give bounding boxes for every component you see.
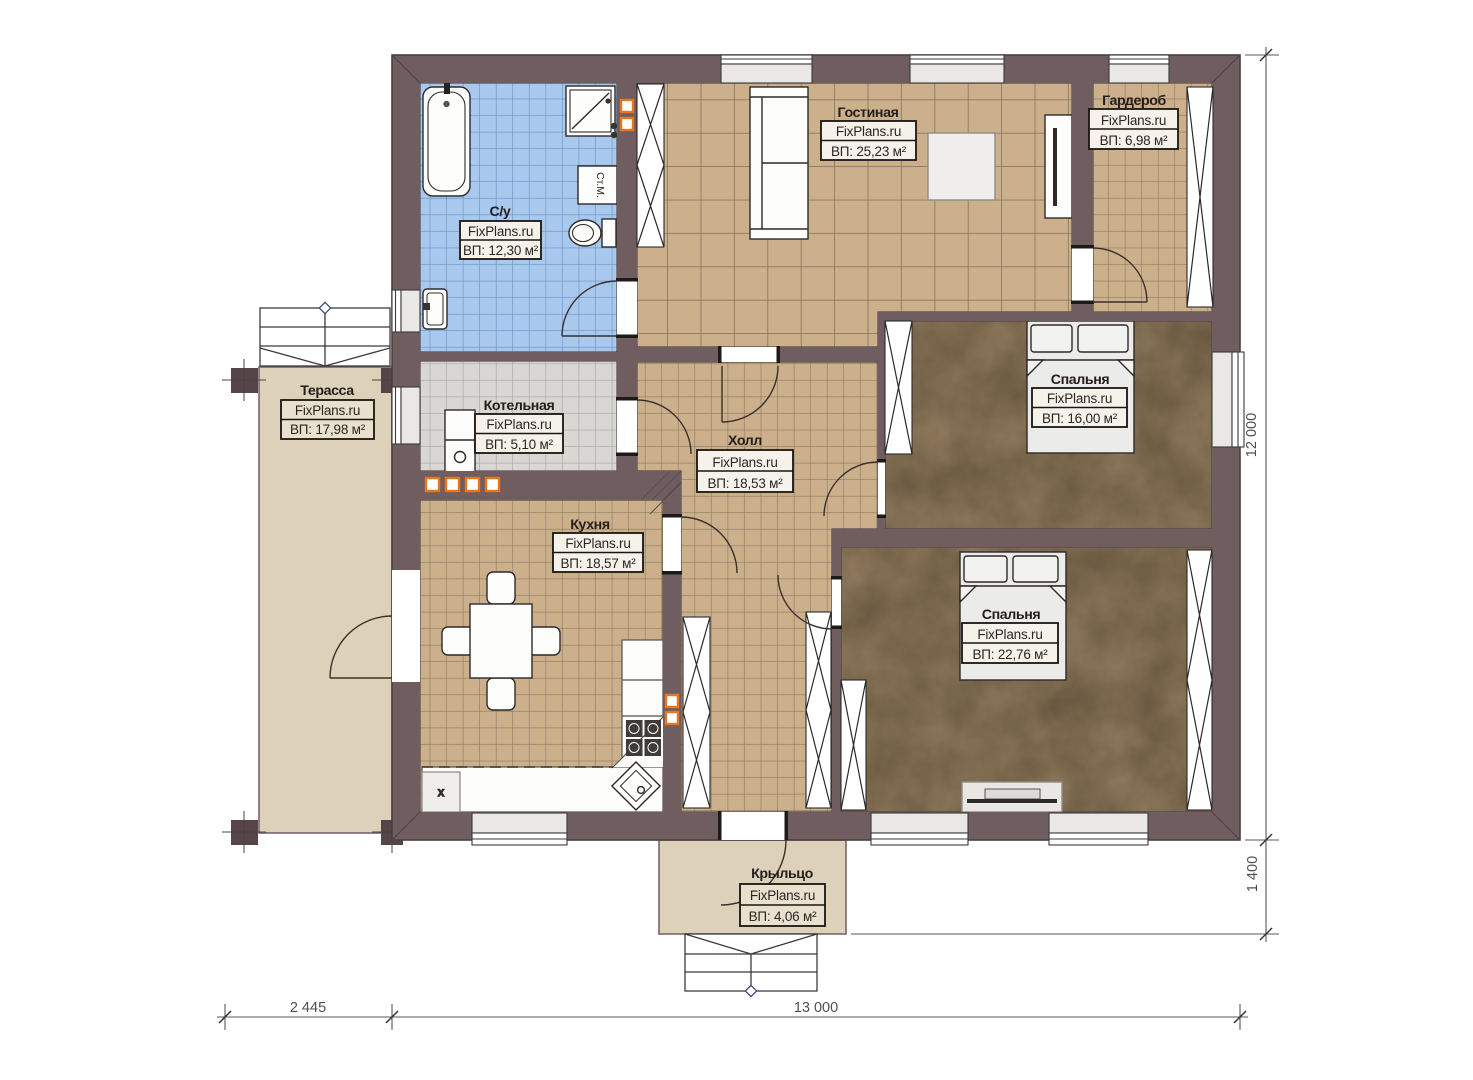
svg-text:ВП: 16,00 м²: ВП: 16,00 м² xyxy=(1042,411,1118,426)
svg-text:Терасса: Терасса xyxy=(300,383,354,399)
svg-text:FixPlans.ru: FixPlans.ru xyxy=(1047,391,1112,406)
svg-text:FixPlans.ru: FixPlans.ru xyxy=(836,124,901,139)
svg-text:2 445: 2 445 xyxy=(290,1000,326,1016)
svg-text:FixPlans.ru: FixPlans.ru xyxy=(1101,113,1166,128)
svg-text:FixPlans.ru: FixPlans.ru xyxy=(750,888,815,903)
svg-text:ВП: 6,98 м²: ВП: 6,98 м² xyxy=(1100,133,1169,148)
svg-text:ВП: 4,06 м²: ВП: 4,06 м² xyxy=(749,909,818,924)
svg-text:Крыльцо: Крыльцо xyxy=(751,866,813,882)
svg-text:1 400: 1 400 xyxy=(1245,856,1261,892)
svg-text:ВП: 18,53 м²: ВП: 18,53 м² xyxy=(707,476,783,491)
svg-text:Спальня: Спальня xyxy=(1051,372,1110,388)
svg-text:ВП: 17,98 м²: ВП: 17,98 м² xyxy=(290,422,366,437)
svg-text:Холл: Холл xyxy=(728,433,762,449)
svg-text:ВП: 22,76 м²: ВП: 22,76 м² xyxy=(972,647,1048,662)
svg-text:FixPlans.ru: FixPlans.ru xyxy=(565,536,630,551)
svg-text:Ст.М.: Ст.М. xyxy=(594,172,606,198)
svg-text:Кухня: Кухня xyxy=(570,517,610,533)
svg-text:ВП: 25,23 м²: ВП: 25,23 м² xyxy=(831,144,907,159)
svg-text:Гостиная: Гостиная xyxy=(838,105,899,121)
svg-text:FixPlans.ru: FixPlans.ru xyxy=(486,417,551,432)
svg-text:Гардероб: Гардероб xyxy=(1102,93,1166,109)
svg-text:ВП: 18,57 м²: ВП: 18,57 м² xyxy=(560,556,636,571)
svg-text:ВП: 12,30 м²: ВП: 12,30 м² xyxy=(463,243,539,258)
svg-text:С/у: С/у xyxy=(490,204,511,220)
svg-text:FixPlans.ru: FixPlans.ru xyxy=(295,403,360,418)
svg-text:FixPlans.ru: FixPlans.ru xyxy=(977,627,1042,642)
svg-text:FixPlans.ru: FixPlans.ru xyxy=(712,455,777,470)
svg-text:12 000: 12 000 xyxy=(1244,413,1260,457)
svg-text:x: x xyxy=(438,785,444,799)
svg-text:ВП: 5,10 м²: ВП: 5,10 м² xyxy=(485,437,554,452)
svg-text:Котельная: Котельная xyxy=(484,398,555,414)
svg-text:13 000: 13 000 xyxy=(794,1000,838,1016)
svg-text:FixPlans.ru: FixPlans.ru xyxy=(468,224,533,239)
svg-text:Спальня: Спальня xyxy=(982,607,1041,623)
